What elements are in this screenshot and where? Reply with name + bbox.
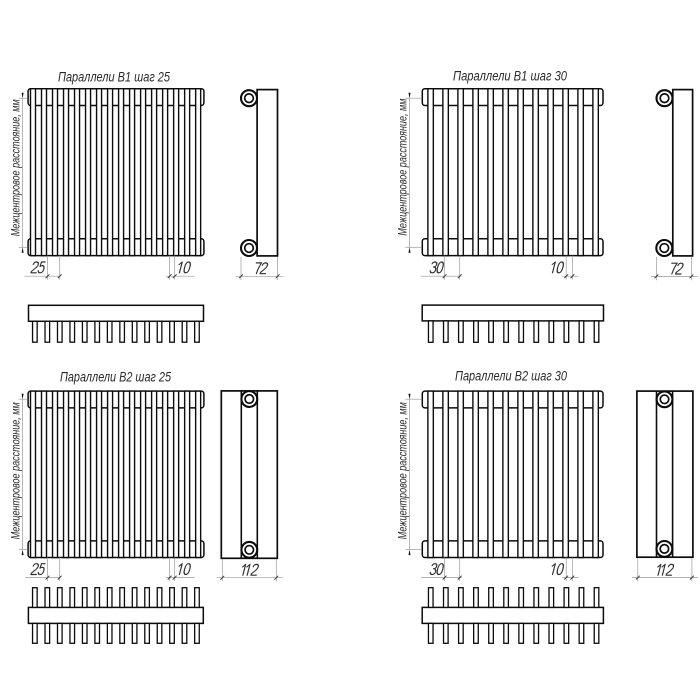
svg-text:Параллели В2 шаг 25: Параллели В2 шаг 25 <box>60 370 171 385</box>
svg-text:Межцентровое расстояние, мм: Межцентровое расстояние, мм <box>396 402 410 539</box>
svg-text:Параллели В1 шаг 25: Параллели В1 шаг 25 <box>58 70 170 85</box>
svg-text:Межцентровое расстояние, мм: Межцентровое расстояние, мм <box>9 402 23 539</box>
svg-text:Межцентровое расстояние, мм: Межцентровое расстояние, мм <box>396 98 410 235</box>
svg-text:Параллели В2 шаг 30: Параллели В2 шаг 30 <box>455 369 567 384</box>
svg-text:Межцентровое расстояние, мм: Межцентровое расстояние, мм <box>9 99 23 236</box>
svg-text:Параллели В1 шаг 30: Параллели В1 шаг 30 <box>453 69 567 84</box>
